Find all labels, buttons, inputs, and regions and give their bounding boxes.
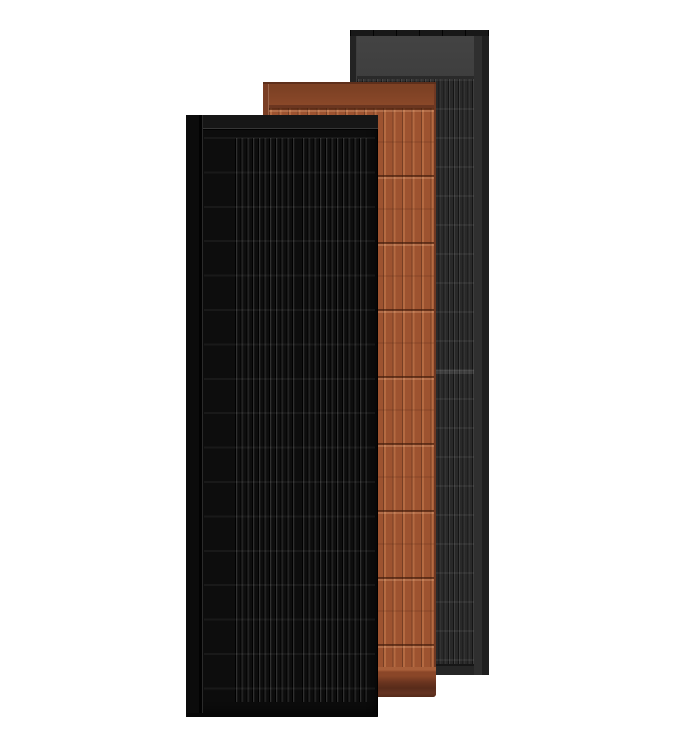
product-render-stage [0, 0, 684, 748]
panel-row-seams [204, 137, 375, 703]
panel-mounting-bar [186, 115, 378, 129]
panel-frame-left [186, 115, 203, 717]
panel-bottom-edge [187, 713, 377, 717]
panel-header-flange [269, 84, 434, 105]
panel-frame-right [434, 84, 436, 675]
solar-panel-black [186, 115, 378, 717]
panel-frame-right [474, 36, 489, 675]
panel-header-flange [357, 36, 474, 79]
